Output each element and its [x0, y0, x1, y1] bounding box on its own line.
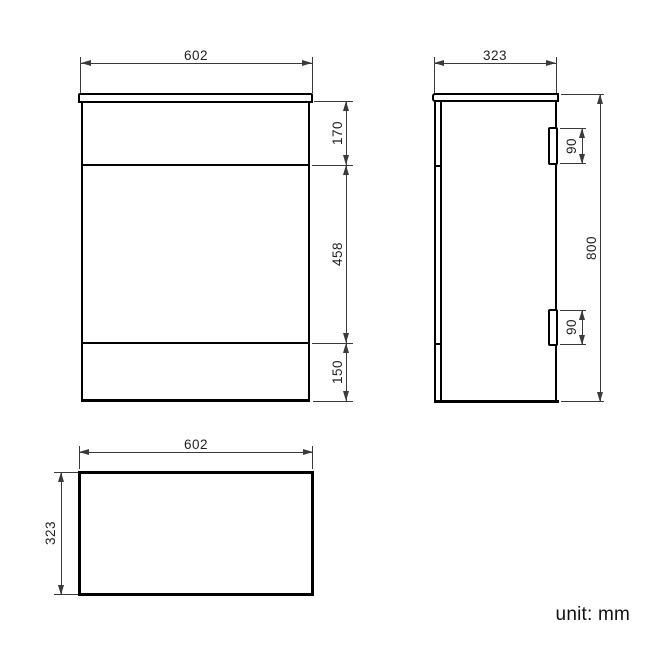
- dim-arrow-icon: [546, 60, 556, 66]
- dim-arrow-icon: [343, 165, 349, 175]
- dim-arrow-icon: [303, 449, 313, 455]
- dim-arrow-icon: [579, 154, 585, 164]
- side-panel-joint-lower: [434, 343, 442, 345]
- top-width-dim-line: [79, 452, 313, 453]
- dim-arrow-icon: [597, 94, 603, 104]
- side-front-panel-outer-line: [434, 102, 436, 401]
- side-countertop: [432, 93, 559, 102]
- front-top-section-label: 170: [331, 111, 345, 155]
- front-countertop: [78, 93, 313, 103]
- side-bottom-line: [434, 400, 559, 403]
- dim-arrow-icon: [579, 128, 585, 138]
- dim-arrow-icon: [302, 60, 312, 66]
- dim-arrow-icon: [343, 101, 349, 111]
- side-depth-ext-right: [556, 57, 557, 93]
- front-bottom-section-label: 150: [331, 350, 345, 394]
- side-height-label: 800: [585, 218, 599, 278]
- front-panel-divider-upper: [81, 164, 310, 166]
- top-depth-dim-line: [61, 472, 62, 595]
- dim-arrow-icon: [597, 392, 603, 402]
- front-height-dim-line: [346, 101, 347, 402]
- front-middle-section-label: 458: [331, 232, 345, 276]
- hinge-top: [548, 127, 558, 165]
- dim-arrow-icon: [579, 310, 585, 320]
- dim-arrow-icon: [58, 585, 64, 595]
- hinge-bottom: [548, 309, 558, 346]
- dim-arrow-icon: [434, 60, 444, 66]
- dim-arrow-icon: [343, 155, 349, 165]
- dim-arrow-icon: [81, 60, 91, 66]
- side-panel-joint-upper: [434, 165, 442, 167]
- side-height-dim-line: [600, 94, 601, 402]
- front-height-ext-bot: [313, 401, 353, 402]
- hinge-bottom-label: 90: [565, 308, 579, 346]
- side-depth-label: 323: [462, 49, 528, 63]
- hinge-top-label: 90: [565, 127, 579, 165]
- front-width-dim-line: [81, 63, 312, 64]
- dim-arrow-icon: [79, 449, 89, 455]
- top-width-label: 602: [163, 438, 229, 452]
- dim-arrow-icon: [579, 335, 585, 345]
- front-width-ext-right: [312, 57, 313, 93]
- technical-drawing-canvas: 602 170 458 150 323: [0, 0, 650, 650]
- top-depth-label: 323: [44, 511, 58, 555]
- dim-arrow-icon: [58, 472, 64, 482]
- front-panel-divider-lower: [81, 342, 310, 344]
- unit-note: unit: mm: [470, 604, 630, 626]
- front-width-label: 602: [163, 49, 229, 63]
- side-depth-dim-line: [434, 63, 556, 64]
- side-front-panel-inner-line: [440, 102, 442, 401]
- dim-arrow-icon: [343, 333, 349, 343]
- top-outline: [78, 471, 314, 596]
- front-cabinet-body: [81, 103, 310, 402]
